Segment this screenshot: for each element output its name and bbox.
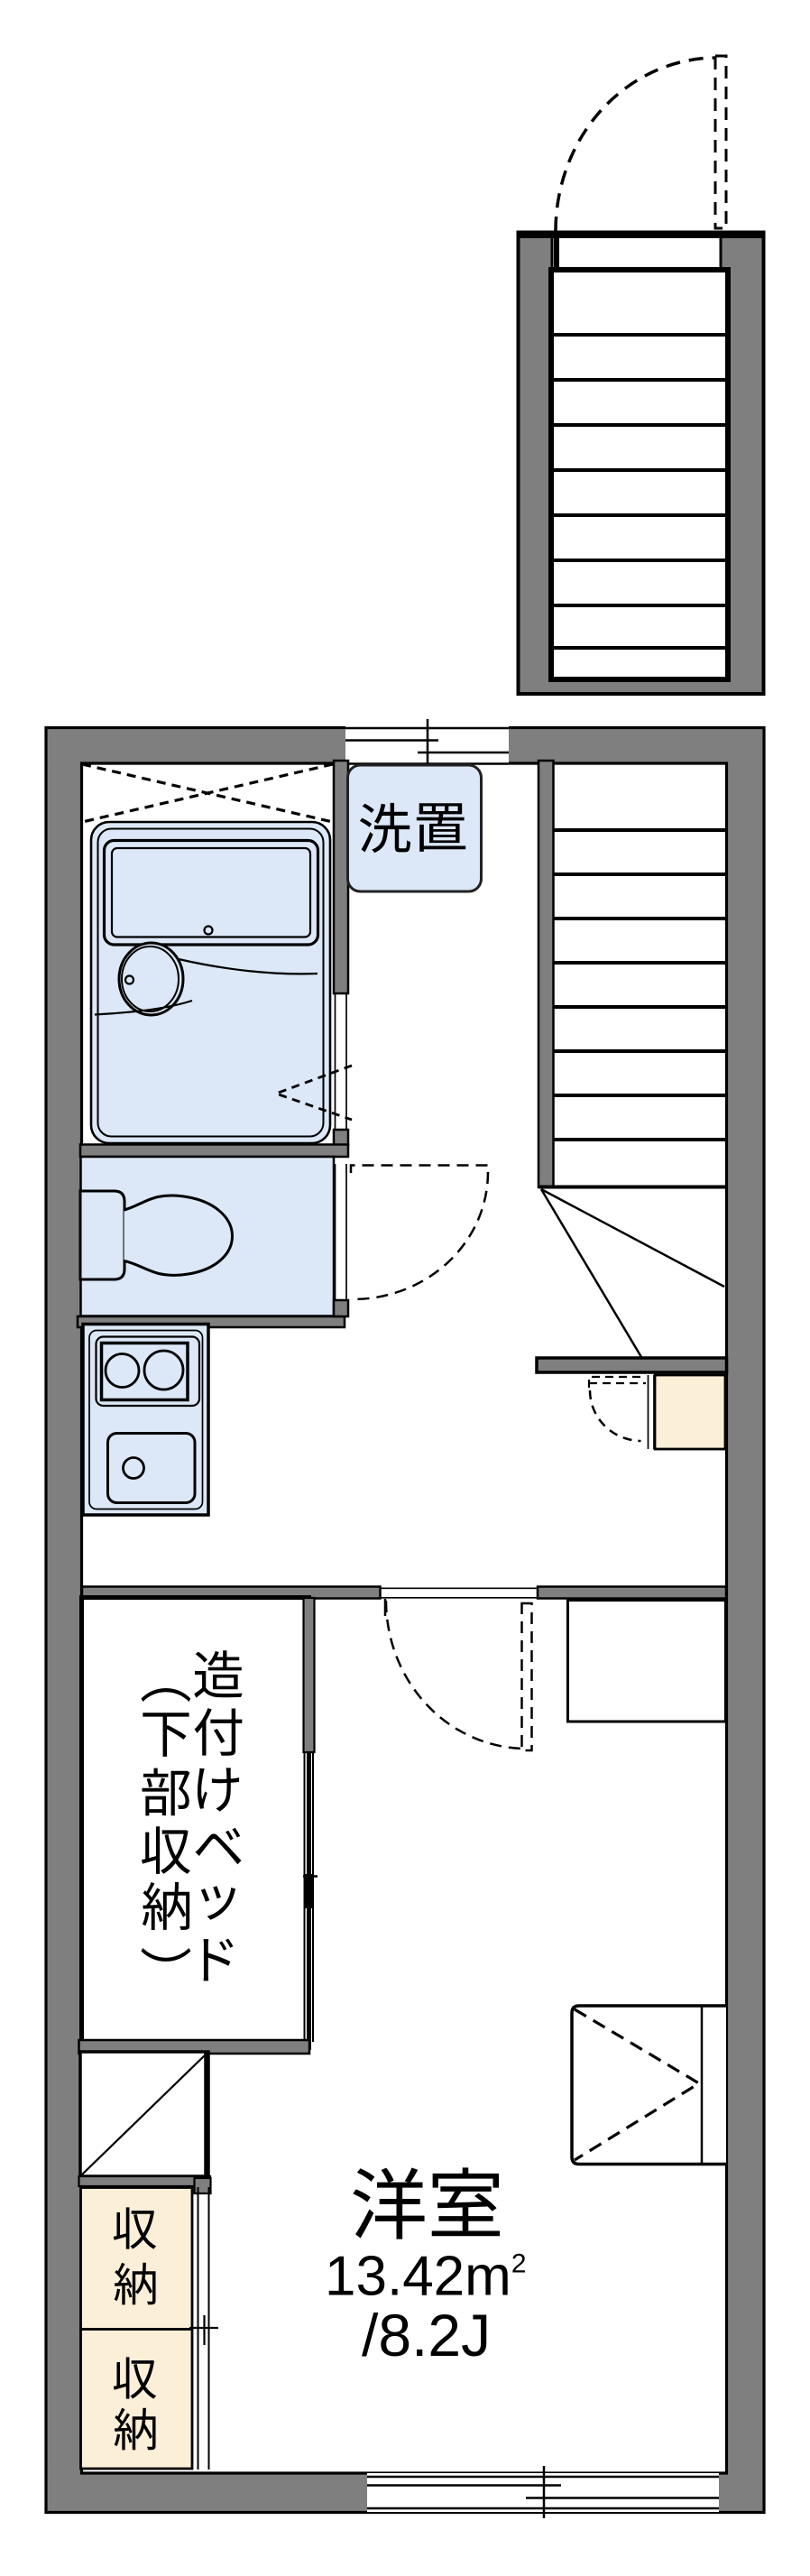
svg-text:13.42m2: 13.42m2 bbox=[325, 2246, 527, 2308]
svg-text:/8.2J: /8.2J bbox=[362, 2302, 491, 2368]
